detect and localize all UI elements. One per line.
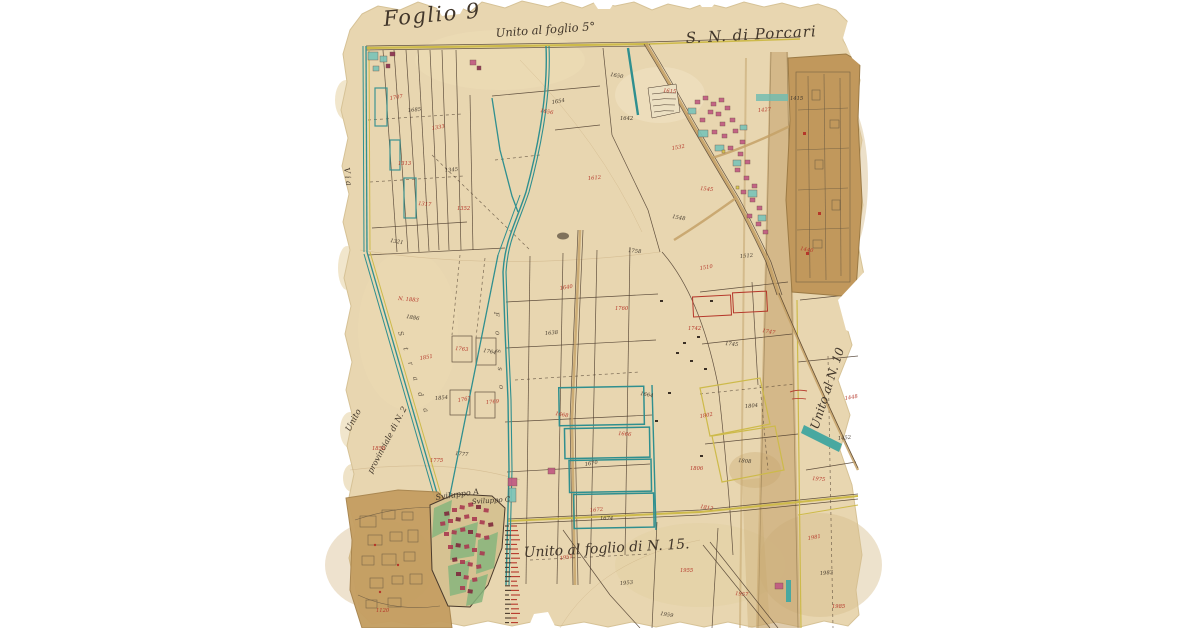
parcel-number: 1858	[372, 446, 386, 452]
building	[722, 134, 727, 138]
parcel-number: 1666	[618, 431, 632, 438]
parcel-number: 1612	[588, 175, 602, 182]
inset-building	[472, 548, 477, 552]
parcel-number: 1955	[680, 568, 693, 574]
building	[744, 176, 749, 180]
building	[736, 186, 739, 189]
inset-building	[444, 511, 450, 516]
inset-building	[456, 572, 461, 576]
parcel-number: 1769	[486, 399, 500, 406]
building	[708, 110, 713, 114]
building	[712, 130, 717, 134]
parcel-number: 1953	[620, 580, 634, 587]
building	[716, 112, 721, 116]
building	[720, 122, 725, 126]
parcel-number: 1985	[832, 604, 845, 610]
inset-building	[455, 517, 461, 522]
building	[695, 100, 700, 104]
parcel-number: 1642	[620, 116, 633, 122]
building	[725, 106, 730, 110]
parcel-number: 1345	[445, 167, 459, 174]
building	[470, 60, 476, 65]
garden-patch	[740, 125, 747, 130]
via-label: V i a	[342, 167, 353, 186]
parcel-number: 1615	[663, 88, 677, 95]
parcel-number: 1763	[455, 346, 469, 353]
parcel-number: 1545	[700, 186, 714, 193]
inset-building	[448, 519, 453, 523]
inset-building	[472, 577, 478, 582]
inset-building	[479, 520, 485, 525]
inset-building	[444, 532, 449, 536]
inset-building	[460, 560, 465, 564]
building	[722, 150, 725, 153]
building	[733, 129, 738, 133]
cadastral-map: Foglio 9 Unito al foglio 5° S. N. di Por…	[0, 0, 1200, 628]
parcel-number: 1415	[790, 96, 803, 102]
garden-patch	[373, 66, 379, 71]
parcel-number: 1352	[457, 206, 470, 212]
inset-building	[467, 589, 473, 594]
building	[763, 230, 768, 234]
building	[719, 98, 724, 102]
screenshot-canvas: Foglio 9 Unito al foglio 5° S. N. di Por…	[0, 0, 1200, 628]
parcel-number: 1674	[600, 516, 613, 522]
parcel-number: 1808	[738, 458, 752, 465]
attached-paper-right-strip	[786, 54, 862, 296]
building	[728, 146, 733, 150]
inset-building	[475, 533, 481, 538]
inset-building	[483, 508, 489, 513]
building	[775, 583, 783, 589]
building	[738, 152, 743, 156]
inset-building	[468, 530, 473, 534]
building	[508, 478, 517, 486]
parcel-number: 1512	[740, 253, 754, 260]
inset-building	[488, 522, 494, 527]
parcel-number: 1120	[376, 608, 390, 614]
parcel-number: 1983	[820, 570, 834, 577]
parcel-number: 1317	[418, 201, 432, 208]
inset-building	[452, 508, 457, 512]
building	[711, 102, 716, 106]
parcel-number: 1745	[725, 341, 739, 348]
inset-building	[452, 557, 458, 562]
inset-building	[460, 586, 465, 590]
garden-patch	[698, 130, 708, 137]
building	[741, 190, 746, 194]
inset-building	[484, 535, 490, 540]
building	[735, 168, 740, 172]
garden-patch	[688, 108, 696, 114]
parcel-number: 1804	[745, 403, 759, 410]
inset-building	[459, 505, 465, 510]
parcel-number: 1777	[455, 451, 469, 458]
inset-building	[463, 575, 469, 580]
inset-building	[479, 551, 485, 556]
parcel-number: 1638	[545, 330, 559, 337]
inset-building	[448, 545, 453, 549]
building	[752, 184, 757, 188]
inset-building	[455, 543, 461, 548]
garden-patch	[368, 52, 378, 60]
parcel-number: 1775	[430, 458, 443, 464]
parcel-number: 1742	[688, 326, 701, 332]
parcel-number: 1760	[615, 306, 629, 312]
inset-building	[467, 562, 473, 567]
garden-patch	[733, 160, 741, 166]
building	[740, 140, 745, 144]
garden-patch	[748, 190, 757, 197]
building	[703, 96, 708, 100]
inset-building	[460, 527, 466, 532]
building	[386, 64, 390, 68]
inset-building	[440, 521, 446, 526]
building	[477, 66, 481, 70]
building	[750, 198, 755, 202]
building	[756, 222, 761, 226]
parcel-number: 1975	[812, 476, 826, 483]
building	[757, 206, 762, 210]
parcel-number: 1758	[628, 248, 642, 255]
parcel-number: 1452	[838, 435, 852, 442]
building	[745, 160, 750, 164]
building	[548, 468, 555, 474]
building	[390, 52, 395, 56]
building	[700, 118, 705, 122]
inset-building	[464, 544, 470, 549]
parcel-number: 1313	[398, 161, 412, 167]
building	[747, 214, 752, 218]
parcel-number: 1672	[590, 507, 604, 514]
garden-patch	[380, 56, 387, 62]
parcel-number: 1957	[735, 591, 749, 598]
parcel-number: 1685	[408, 107, 422, 114]
parcel-number: 1806	[690, 466, 704, 472]
inset-building	[472, 517, 477, 521]
building	[730, 118, 735, 122]
inset-building	[464, 514, 470, 519]
inset-building	[451, 530, 457, 535]
garden-patch	[758, 215, 766, 221]
parcel-number: 1427	[758, 107, 772, 114]
inset-building	[476, 564, 482, 569]
parcel-number: 1854	[435, 395, 449, 402]
